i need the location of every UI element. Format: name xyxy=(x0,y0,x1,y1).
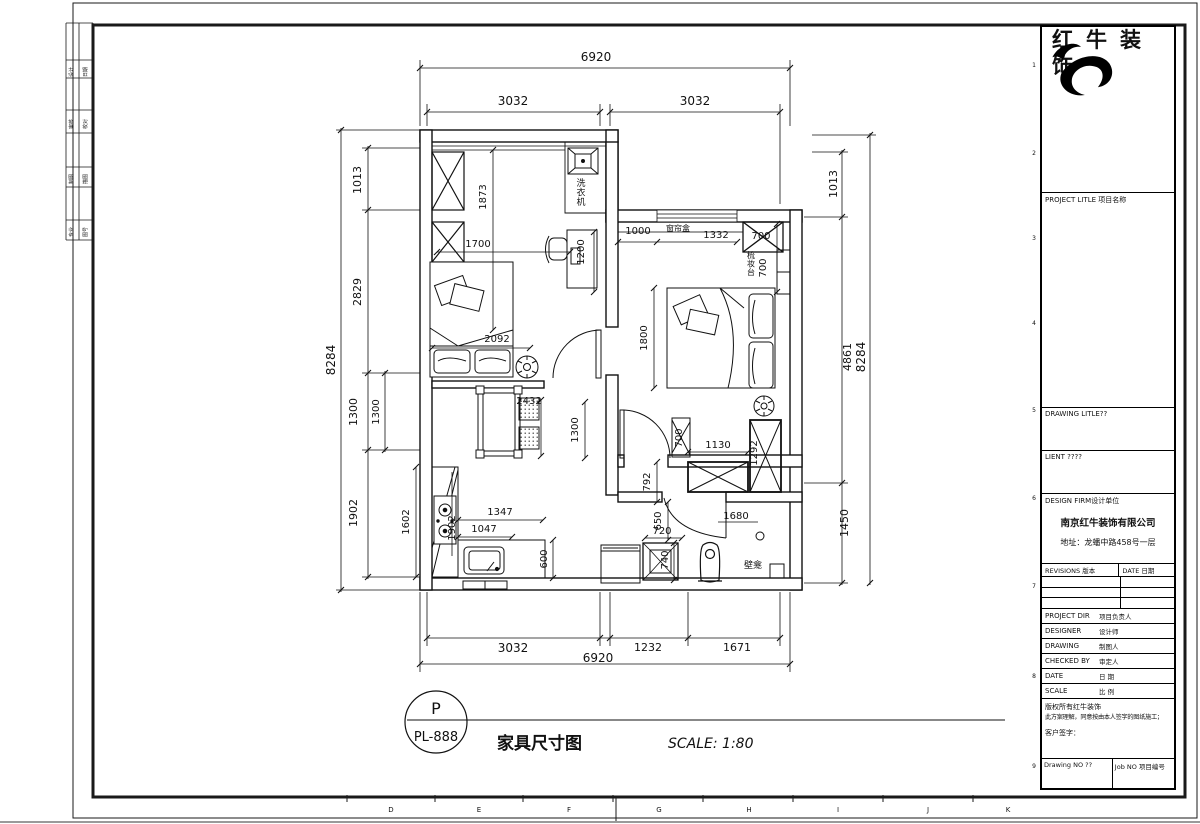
toilet xyxy=(698,543,722,583)
dim-text: 1700 xyxy=(465,239,490,250)
dim-text: 6920 xyxy=(581,50,612,64)
text-layer: 6920303230328284101328291300130019021013… xyxy=(68,50,1036,814)
dim-text: 1347 xyxy=(487,507,512,518)
revisions-table: REVISIONS 版本 DATE 日期 xyxy=(1042,563,1174,608)
bed-left xyxy=(430,262,513,377)
dim-text: 600 xyxy=(539,549,550,568)
desk-and-chair xyxy=(546,230,598,288)
row-checked-by: CHECKED BY 审定人 xyxy=(1042,653,1174,668)
job-no-label: Job NO 项目编号 xyxy=(1112,759,1174,788)
row-drawing: DRAWING 制图人 xyxy=(1042,638,1174,653)
dim-text: 3032 xyxy=(498,94,529,108)
grid-letter: J xyxy=(926,806,929,814)
grid-letter: I xyxy=(837,806,839,814)
dim-text: 1450 xyxy=(838,509,851,537)
stamp-cell-text: 图号 xyxy=(83,227,89,237)
grid-number: 7 xyxy=(1032,583,1036,590)
detail-ref-letter: P xyxy=(431,699,441,718)
floor-drain-icon xyxy=(756,532,764,540)
dim-text: 700 xyxy=(751,231,770,242)
dim-text: 4861 xyxy=(841,343,854,371)
dim-text: 1602 xyxy=(401,509,412,534)
dim-text: 1332 xyxy=(703,230,728,241)
dim-text: 2092 xyxy=(484,334,509,345)
drawing-no-label: Drawing NO ?? xyxy=(1042,759,1112,788)
dim-text: 1300 xyxy=(570,417,581,442)
door-left-bedroom xyxy=(553,330,601,378)
dim-text: 1902 xyxy=(347,499,360,527)
stamp-cell-text: 描图 xyxy=(82,174,89,184)
dim-text: 3032 xyxy=(498,641,529,655)
dim-text: 1000 xyxy=(625,226,650,237)
stamp-cell-text: 制图 xyxy=(68,174,75,184)
dim-text: 1292 xyxy=(749,440,760,465)
revision-row xyxy=(1042,598,1174,608)
ceiling-fan-icon-left xyxy=(516,356,538,378)
revision-row xyxy=(1042,588,1174,599)
dim-text: 2829 xyxy=(351,278,364,306)
dim-text: 1130 xyxy=(705,440,730,451)
dim-text: 1013 xyxy=(827,170,840,198)
label-curtain-box: 窗帘盒 xyxy=(666,223,690,233)
revision-row xyxy=(1042,577,1174,588)
grid-number: 3 xyxy=(1032,235,1036,242)
dim-text: 1800 xyxy=(639,325,650,350)
drawing-title: 家具尺寸图 xyxy=(497,733,582,754)
grid-number: 9 xyxy=(1032,763,1036,770)
drawing-number-row: Drawing NO ?? Job NO 项目编号 xyxy=(1042,758,1174,788)
dim-text: 700 xyxy=(674,428,685,447)
design-firm-label: DESIGN FIRM设计单位 xyxy=(1042,494,1174,508)
grid-number: 1 xyxy=(1032,62,1036,69)
date-header: DATE 日期 xyxy=(1119,564,1174,576)
firm-name: 南京红牛装饰有限公司 xyxy=(1042,515,1174,529)
design-firm-section: DESIGN FIRM设计单位 南京红牛装饰有限公司 地址：龙蟠中路458号一层 xyxy=(1042,493,1174,563)
copyright-notes: 版权所有红牛装饰 此方案理解，同意按由本人签字的图纸施工； 客户签字： xyxy=(1042,698,1174,758)
scale-label: SCALE: 1:80 xyxy=(668,736,754,752)
dim-text: 2432 xyxy=(516,396,541,407)
client-signature-label: 客户签字： xyxy=(1045,728,1171,738)
door-right-bedroom xyxy=(620,410,670,458)
revisions-header: REVISIONS 版本 xyxy=(1042,564,1119,576)
dim-text: 1047 xyxy=(471,524,496,535)
dim-text: 1013 xyxy=(351,166,364,194)
label-wall-niche: 壁龛 xyxy=(744,559,762,571)
project-title-section: PROJECT LITLE 项目名称 xyxy=(1042,192,1174,407)
grid-number: 8 xyxy=(1032,673,1036,680)
wall-niche xyxy=(770,564,784,578)
stamp-cell-text: 专业 xyxy=(68,227,75,237)
dim-text: 1232 xyxy=(634,641,662,654)
ceiling-fan-icon-right xyxy=(754,396,774,416)
dining-table xyxy=(476,386,522,458)
company-logo-block: 红牛装饰 xyxy=(1042,27,1174,192)
dressing-table xyxy=(777,250,790,294)
grid-letter: G xyxy=(656,806,661,814)
drawing-title-section: DRAWING LITLE?? xyxy=(1042,407,1174,450)
door-bathroom xyxy=(664,498,726,538)
detail-ref-number: PL-888 xyxy=(414,730,458,745)
dim-text: 700 xyxy=(758,258,769,277)
dim-text: 1300 xyxy=(371,399,382,424)
grid-letter: F xyxy=(567,806,571,814)
grid-letter: D xyxy=(388,806,393,814)
wardrobe-left-2 xyxy=(432,222,464,262)
row-date: DATE 日 期 xyxy=(1042,668,1174,683)
label-washing-machine: 洗衣机 xyxy=(576,177,585,208)
drawing-title-label: DRAWING LITLE?? xyxy=(1042,408,1174,420)
dim-text: 1200 xyxy=(576,239,587,264)
red-bull-logo-icon xyxy=(1042,37,1120,101)
project-title-label: PROJECT LITLE 项目名称 xyxy=(1042,193,1174,207)
row-project-dir: PROJECT DIR 项目负责人 xyxy=(1042,608,1174,623)
grid-number: 5 xyxy=(1032,407,1036,414)
grid-letter: K xyxy=(1006,806,1011,814)
row-designer: DESIGNER 设计师 xyxy=(1042,623,1174,638)
title-block: 红牛装饰 PROJECT LITLE 项目名称 DRAWING LITLE?? … xyxy=(1040,25,1176,790)
floor-plan-canvas: 6920303230328284101328291300130019021013… xyxy=(0,0,1200,824)
stamp-cell-text: 设计 xyxy=(68,67,75,77)
dim-text: 1873 xyxy=(478,184,489,209)
stamp-cell-text: 校对 xyxy=(82,119,89,129)
dim-text: 3032 xyxy=(680,94,711,108)
washer-cabinet xyxy=(601,545,640,583)
dim-text: 8284 xyxy=(854,342,868,373)
dim-text: 1902 xyxy=(447,515,458,540)
dim-text: 1300 xyxy=(347,398,360,426)
cad-drawing-sheet: 6920303230328284101328291300130019021013… xyxy=(0,0,1200,824)
row-scale: SCALE 比 例 xyxy=(1042,683,1174,698)
dim-text: 740 xyxy=(660,550,671,569)
dim-text: 1671 xyxy=(723,641,751,654)
label-dressing-table: 梳妆台 xyxy=(747,250,755,277)
dim-text: 6920 xyxy=(583,651,614,665)
wardrobe-left-1 xyxy=(432,152,464,210)
grid-number: 2 xyxy=(1032,150,1036,157)
client-label: LIENT ???? xyxy=(1042,451,1174,463)
dim-text: 792 xyxy=(642,472,653,491)
stamp-cell-text: 日期 xyxy=(83,67,89,77)
bed-right xyxy=(667,288,775,388)
grid-number: 4 xyxy=(1032,320,1036,327)
dim-text: 8284 xyxy=(324,345,338,376)
dim-text: 1680 xyxy=(723,511,748,522)
signature-strip xyxy=(66,23,93,240)
grid-letter: E xyxy=(477,806,481,814)
grid-number: 6 xyxy=(1032,495,1036,502)
grid-letter: H xyxy=(746,806,751,814)
firm-address: 地址：龙蟠中路458号一层 xyxy=(1042,537,1174,548)
dim-text: 720 xyxy=(652,526,671,537)
stamp-cell-text: 审核 xyxy=(68,119,75,129)
client-section: LIENT ???? xyxy=(1042,450,1174,493)
